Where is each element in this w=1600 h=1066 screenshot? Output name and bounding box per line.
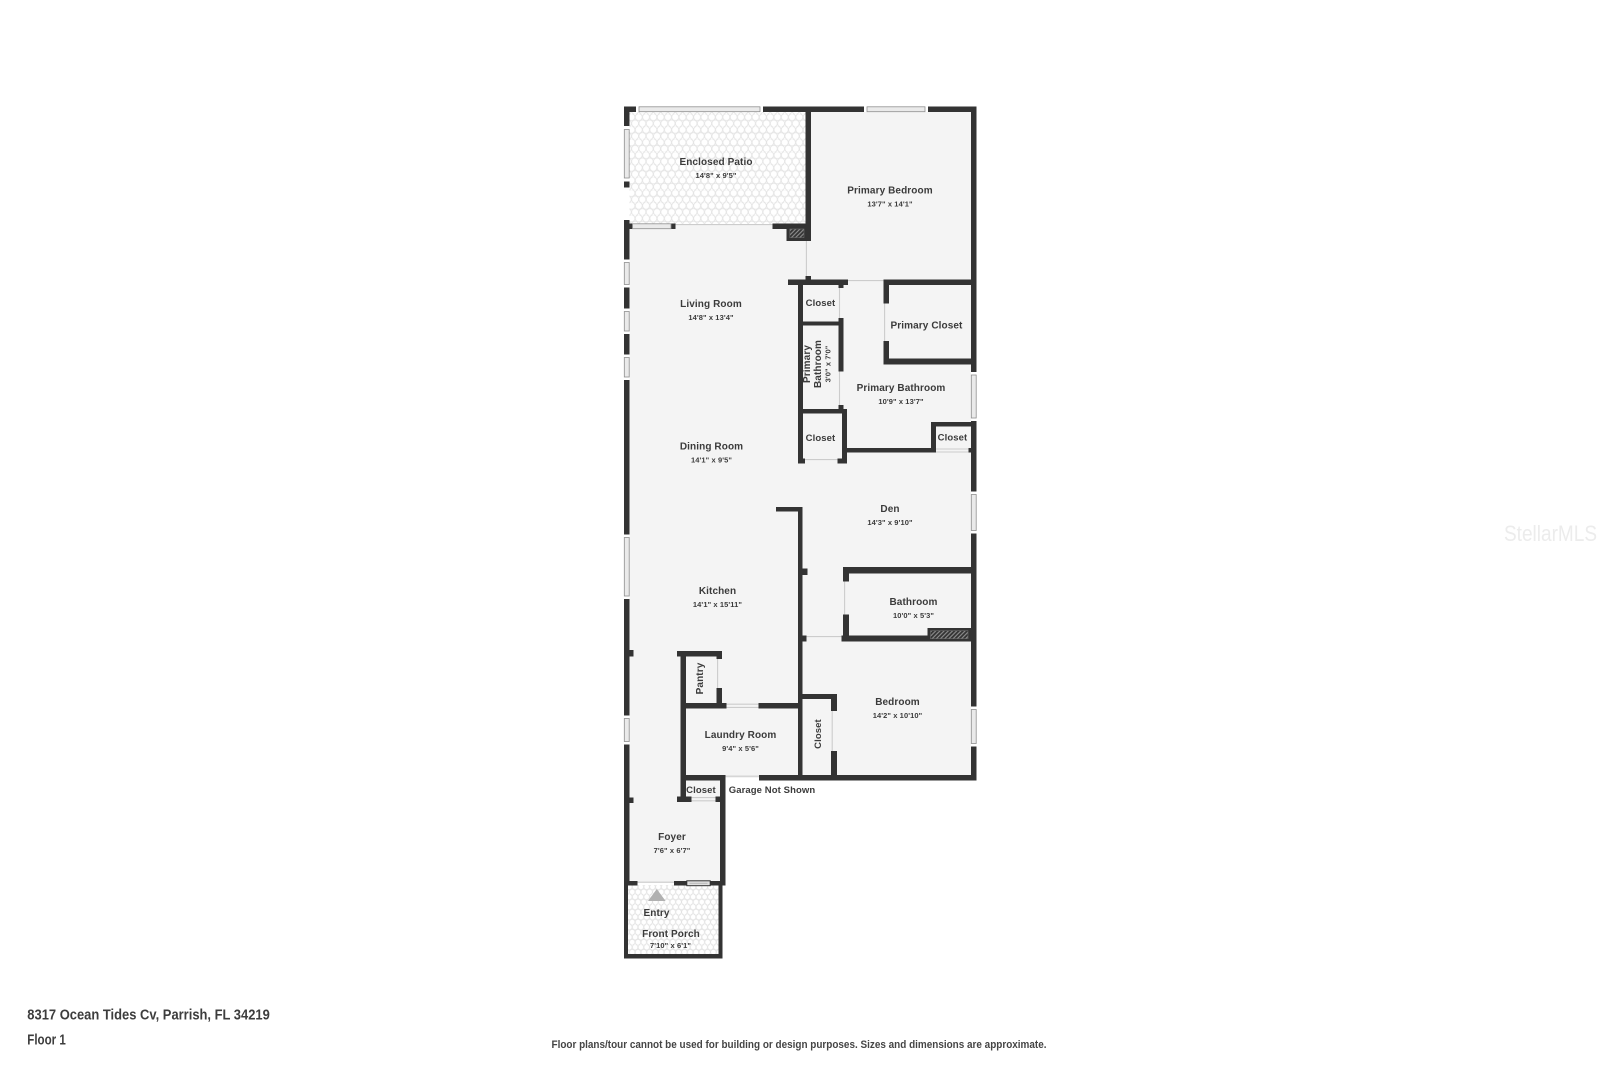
- svg-text:Den: Den: [880, 504, 899, 515]
- svg-text:10'0" x 5'3": 10'0" x 5'3": [893, 611, 934, 620]
- svg-text:Closet: Closet: [806, 298, 836, 309]
- svg-text:PrimaryBathroom3'0" x 7'0": PrimaryBathroom3'0" x 7'0": [802, 340, 833, 388]
- svg-text:Primary Closet: Primary Closet: [891, 321, 964, 332]
- svg-text:13'7" x 14'1": 13'7" x 14'1": [867, 200, 913, 209]
- svg-text:Closet: Closet: [686, 785, 716, 796]
- svg-text:Front Porch: Front Porch: [642, 929, 700, 940]
- svg-text:14'8" x 13'4": 14'8" x 13'4": [688, 313, 734, 322]
- svg-text:Garage Not Shown: Garage Not Shown: [729, 785, 816, 796]
- svg-text:Floor 1: Floor 1: [27, 1033, 66, 1049]
- svg-text:Primary Bathroom: Primary Bathroom: [857, 383, 946, 394]
- svg-text:14'8" x 9'5": 14'8" x 9'5": [695, 171, 736, 180]
- svg-text:Living Room: Living Room: [680, 299, 742, 310]
- svg-text:Primary Bedroom: Primary Bedroom: [847, 186, 932, 197]
- svg-text:14'1" x 15'11": 14'1" x 15'11": [693, 600, 743, 609]
- svg-text:Enclosed Patio: Enclosed Patio: [679, 157, 752, 168]
- svg-text:Kitchen: Kitchen: [699, 586, 736, 597]
- svg-text:8317 Ocean Tides Cv, Parrish,: 8317 Ocean Tides Cv, Parrish, FL 34219: [27, 1008, 269, 1024]
- svg-text:Foyer: Foyer: [658, 832, 686, 843]
- svg-text:Floor plans/tour cannot be use: Floor plans/tour cannot be used for buil…: [552, 1039, 1047, 1051]
- svg-text:StellarMLS: StellarMLS: [1504, 521, 1597, 546]
- svg-text:Closet: Closet: [938, 433, 968, 444]
- svg-text:7'10" x 6'1": 7'10" x 6'1": [650, 941, 691, 950]
- svg-text:Closet: Closet: [813, 718, 824, 748]
- svg-text:Laundry Room: Laundry Room: [705, 730, 777, 741]
- svg-text:10'9" x 13'7": 10'9" x 13'7": [878, 397, 924, 406]
- svg-text:14'1" x 9'5": 14'1" x 9'5": [691, 456, 732, 465]
- svg-text:9'4" x 5'6": 9'4" x 5'6": [722, 744, 759, 753]
- svg-text:Entry: Entry: [643, 908, 669, 919]
- svg-text:14'2" x 10'10": 14'2" x 10'10": [873, 711, 923, 720]
- svg-text:14'3" x 9'10": 14'3" x 9'10": [867, 518, 913, 527]
- svg-text:Dining Room: Dining Room: [680, 442, 743, 453]
- svg-text:Pantry: Pantry: [695, 662, 706, 694]
- svg-text:7'6" x 6'7": 7'6" x 6'7": [654, 846, 691, 855]
- svg-text:Bathroom: Bathroom: [889, 597, 937, 608]
- svg-text:Closet: Closet: [806, 433, 836, 444]
- svg-text:Bedroom: Bedroom: [875, 697, 920, 708]
